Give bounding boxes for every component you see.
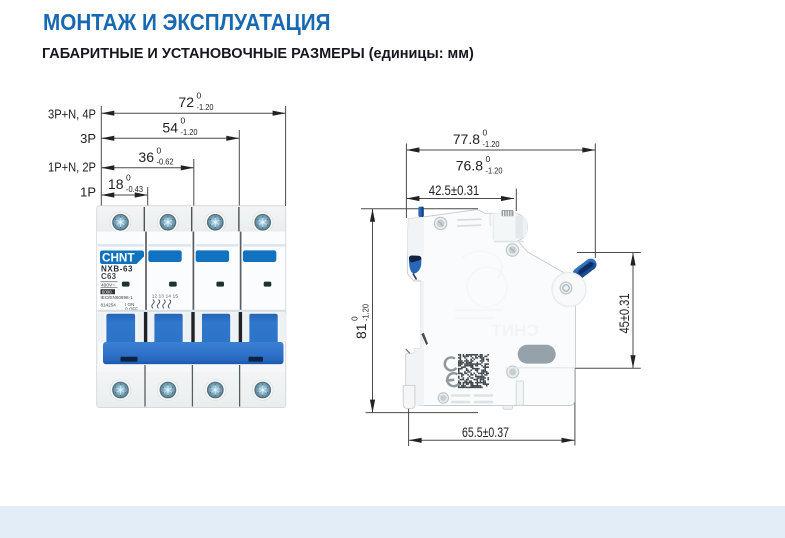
svg-text:0: 0 [197, 91, 202, 101]
svg-text:CHNT: CHNT [491, 321, 539, 340]
svg-text:77.8: 77.8 [453, 131, 480, 147]
svg-text:54: 54 [162, 120, 178, 136]
svg-text:1P: 1P [80, 184, 96, 199]
svg-text:CHNT: CHNT [102, 251, 135, 265]
svg-text:45±0.31: 45±0.31 [616, 293, 632, 333]
svg-text:81: 81 [353, 323, 369, 339]
svg-text:42.5±0.31: 42.5±0.31 [429, 182, 480, 198]
svg-text:-1.20: -1.20 [483, 139, 500, 149]
svg-text:0: 0 [483, 128, 488, 138]
svg-text:3P+N, 4P: 3P+N, 4P [48, 107, 96, 122]
svg-text:72: 72 [178, 94, 194, 110]
svg-text:814254: 814254 [101, 302, 117, 307]
svg-text:1P+N, 2P: 1P+N, 2P [48, 160, 96, 175]
svg-text:6000: 6000 [102, 289, 112, 294]
svg-text:-1.20: -1.20 [181, 127, 198, 137]
svg-text:12 13 14 15: 12 13 14 15 [152, 293, 179, 298]
svg-text:0: 0 [157, 146, 162, 156]
svg-text:0: 0 [349, 316, 359, 321]
svg-text:3P: 3P [80, 131, 96, 146]
svg-text:36: 36 [138, 149, 154, 165]
svg-text:65.5±0.37: 65.5±0.37 [462, 424, 509, 440]
svg-text:-1.20: -1.20 [486, 166, 503, 176]
svg-text:76.8: 76.8 [456, 158, 483, 174]
svg-text:-1.20: -1.20 [360, 304, 370, 321]
svg-text:IEC/EN60898-1: IEC/EN60898-1 [101, 295, 134, 300]
svg-text:-0.43: -0.43 [126, 184, 143, 194]
svg-text:-0.62: -0.62 [157, 157, 174, 167]
svg-text:18: 18 [108, 176, 124, 192]
svg-text:C63: C63 [101, 272, 117, 281]
svg-text:0: 0 [486, 154, 491, 164]
svg-text:0: 0 [126, 173, 131, 183]
svg-text:-1.20: -1.20 [197, 102, 214, 112]
svg-text:0: 0 [181, 116, 186, 126]
